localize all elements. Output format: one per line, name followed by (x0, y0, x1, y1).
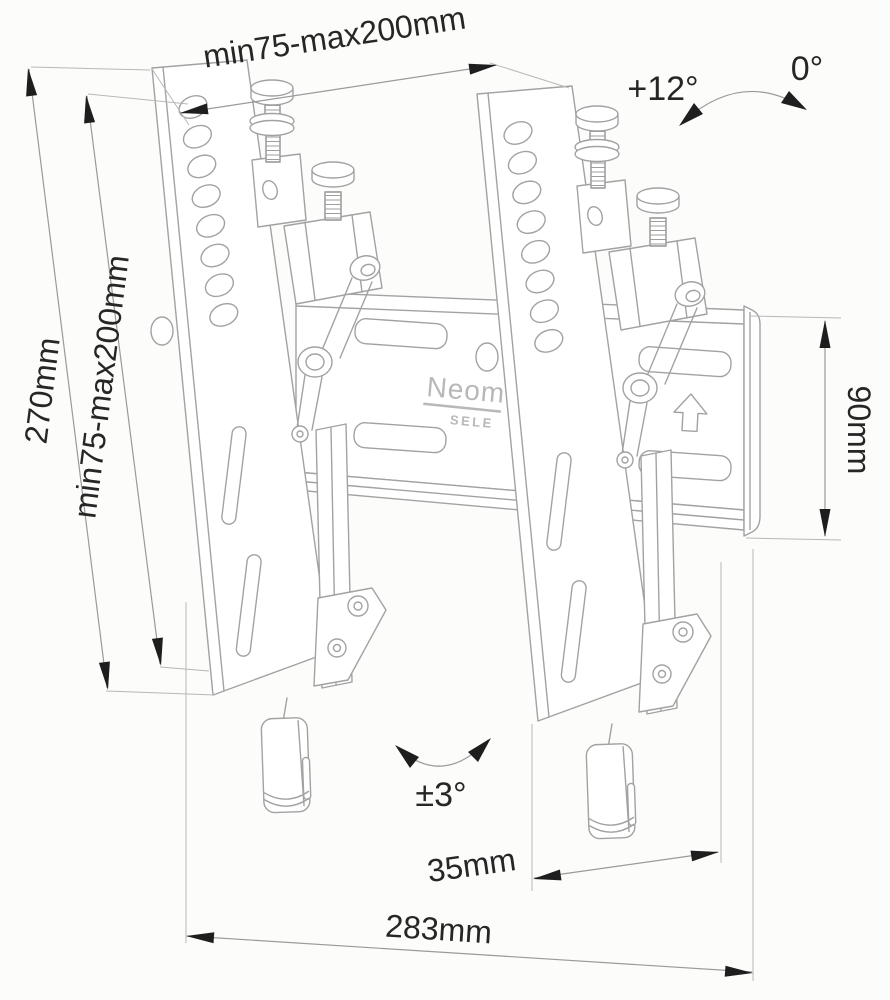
plate-width-label: 283mm (384, 908, 493, 951)
vesa-width-label: min75-max200mm (201, 0, 468, 75)
swivel-label: ±3° (415, 776, 466, 814)
bracket-height-label: 270mm (17, 335, 66, 445)
plate-height-label: 90mm (841, 386, 877, 475)
vesa-height-label: min75-max200mm (66, 253, 135, 520)
plate-end-cap (744, 306, 760, 536)
depth-offset-label: 35mm (425, 841, 518, 889)
diagram-page: Neom SELE (0, 0, 890, 1000)
mount-technical-diagram: Neom SELE (0, 0, 890, 1000)
tilt-zero-label: 0° (791, 50, 824, 88)
tilt-max-label: +12° (627, 70, 698, 108)
